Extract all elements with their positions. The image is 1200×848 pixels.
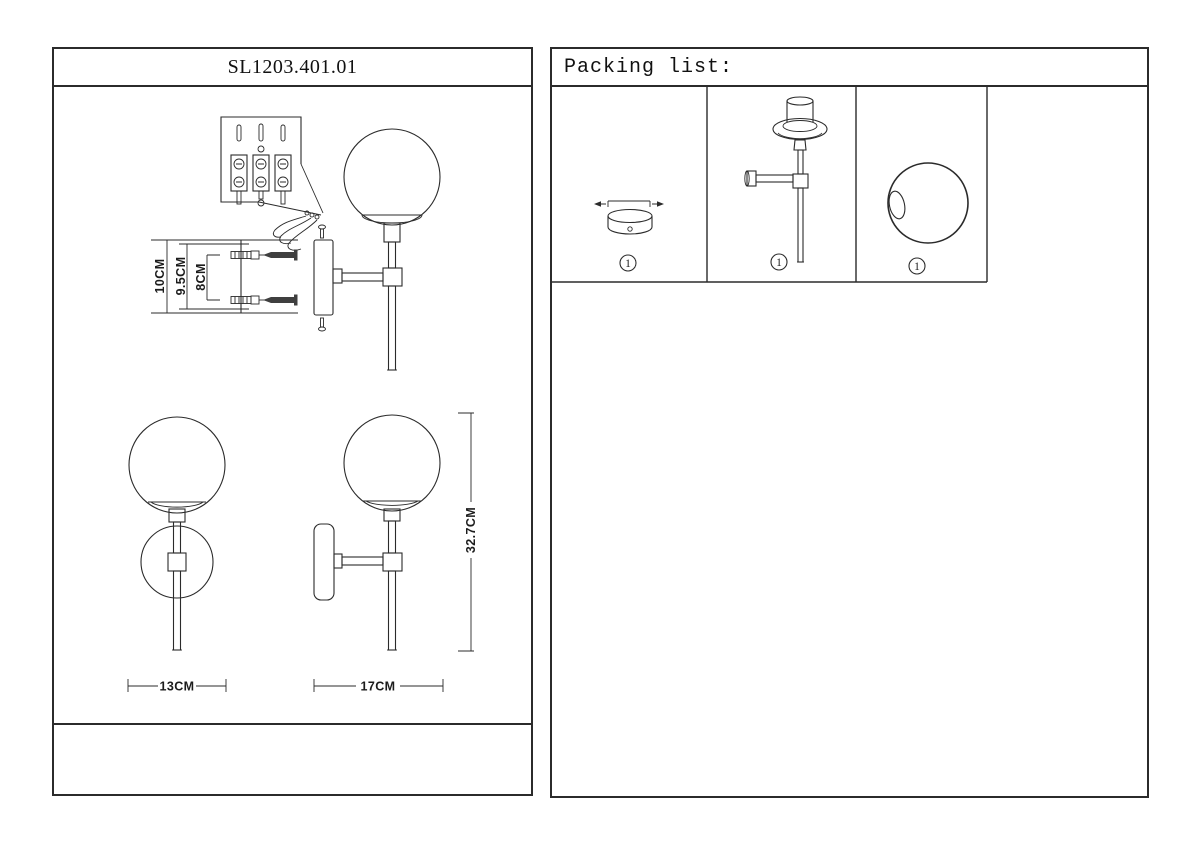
drawing-panel: SL1203.401.01 [52,47,533,796]
dim-depth-label: 17CM [361,680,396,694]
lamp-front-view: 13CM [128,417,226,694]
packing-grid [552,87,987,282]
quantity-value: 1 [776,257,782,269]
packing-list-panel: Packing list: 1 [550,47,1149,798]
model-number: SL1203.401.01 [228,56,358,79]
dim-height-label: 32.7CM [464,507,478,553]
quantity-value: 1 [914,261,920,273]
lamp-side-view-exploded [333,129,440,370]
quantity-badge: 1 [771,254,787,270]
model-header: SL1203.401.01 [54,49,531,87]
wires-icon [273,211,319,250]
canopy-base-icon [594,201,664,234]
dim-plate-height-label: 9.5CM [174,257,188,296]
spec-sheet: SL1203.401.01 [0,0,1200,848]
quantity-badge: 1 [909,258,925,274]
packing-list-title: Packing list: [552,56,733,79]
installation-drawing: 10CM 9.5CM 8CM [54,87,531,794]
glass-globe-icon [887,163,968,243]
terminal-block-detail-icon [221,117,323,215]
backplate-outline [141,526,213,598]
dim-width-label: 13CM [160,680,195,694]
packing-list-table: 1 1 [552,87,1147,796]
globe-outline [344,129,440,225]
quantity-badge: 1 [620,255,636,271]
globe-outline [344,415,440,511]
lamp-body-icon [745,97,827,262]
packing-list-header: Packing list: [552,49,1147,87]
dim-total-height-label: 10CM [153,259,167,294]
dim-hole-spacing-label: 8CM [194,263,208,291]
mounting-plate-icon [314,225,333,331]
globe-outline [129,417,225,513]
quantity-value: 1 [625,258,631,270]
lamp-side-view: 32.7CM 17CM [314,413,478,694]
